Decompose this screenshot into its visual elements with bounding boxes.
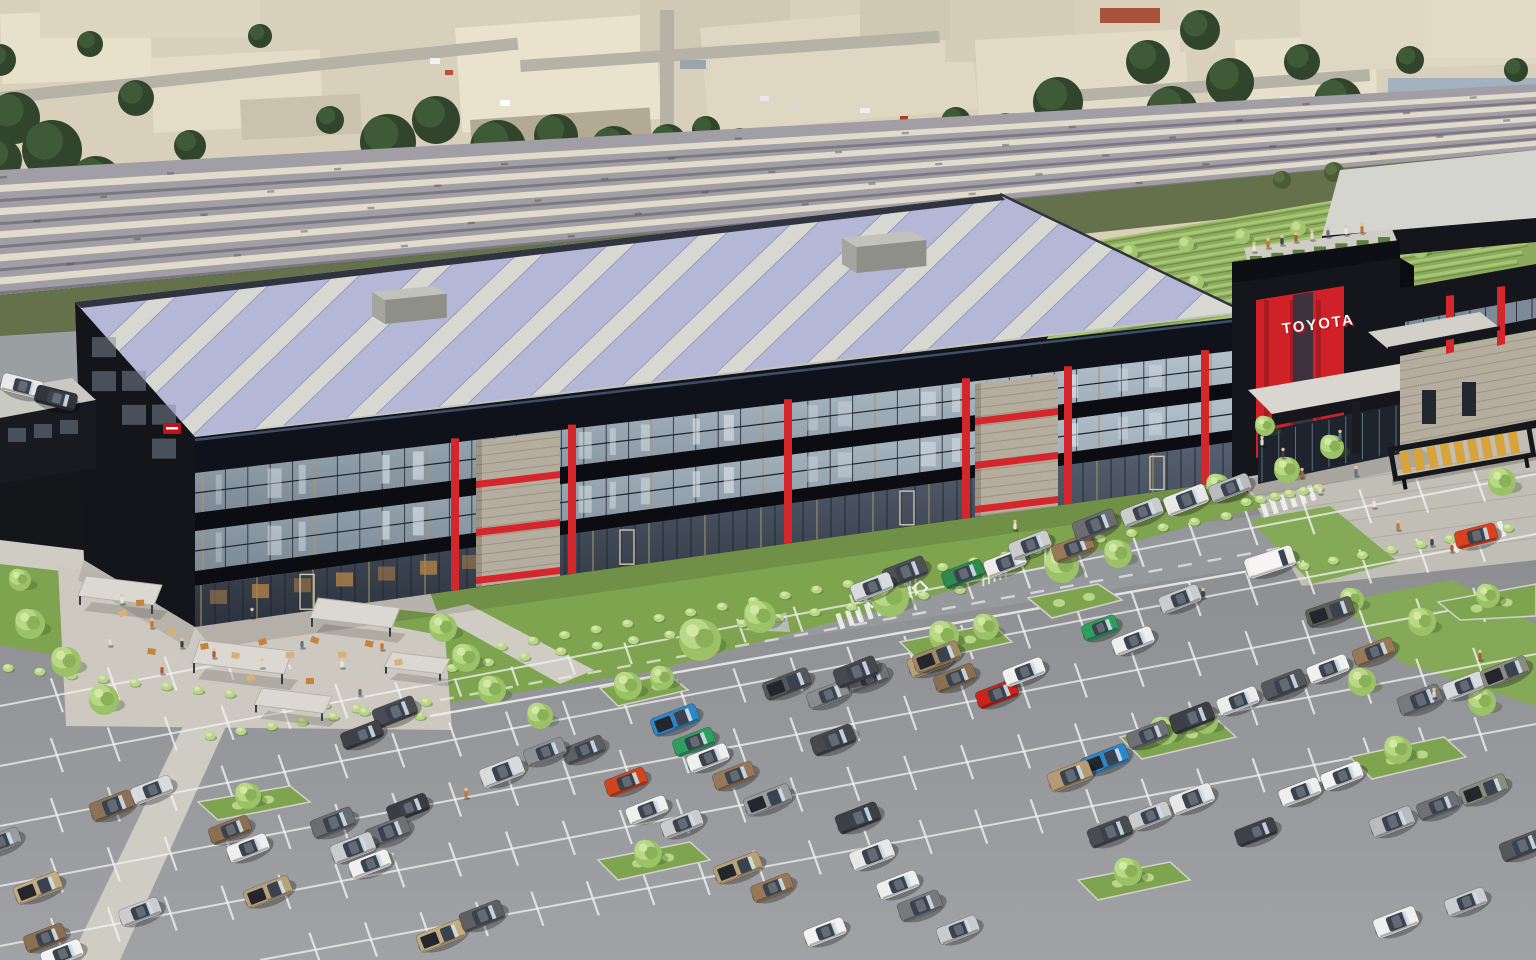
corridor-speckle	[468, 221, 475, 224]
person-head	[1450, 542, 1453, 545]
person-body	[464, 791, 467, 798]
bg-tree-highlight	[1183, 12, 1208, 37]
corridor-speckle	[67, 262, 74, 265]
interior-glimpse	[299, 522, 306, 551]
corridor-speckle	[100, 195, 107, 198]
corridor-speckle	[33, 220, 40, 223]
corridor-speckle	[301, 230, 308, 233]
person-shadow	[160, 673, 166, 676]
corridor-speckle	[1002, 144, 1009, 147]
corridor-speckle	[735, 137, 742, 140]
person-head	[464, 788, 467, 791]
person-shadow	[1432, 697, 1438, 700]
person-head	[160, 664, 163, 667]
interior-glimpse	[579, 486, 592, 513]
tree-highlight	[457, 648, 465, 656]
shrub-highlight	[1446, 535, 1452, 539]
bg-vehicle	[430, 58, 440, 64]
person-body	[212, 651, 215, 658]
corridor-speckle	[434, 184, 441, 187]
shrub-highlight	[1300, 563, 1306, 567]
person-body	[108, 639, 111, 646]
shrub-highlight	[237, 728, 243, 732]
roof-tree-highlight	[1190, 276, 1199, 285]
person-body	[1260, 439, 1263, 446]
person-head	[1326, 227, 1329, 230]
tree-highlight	[1279, 460, 1287, 468]
bg-tree-highlight	[415, 98, 445, 128]
person-head	[150, 618, 153, 621]
corridor-speckle	[1202, 163, 1209, 166]
person-body	[1338, 433, 1341, 440]
person-body	[250, 611, 253, 618]
person-head	[250, 608, 253, 611]
person-shadow	[1281, 457, 1287, 460]
corridor-speckle	[1169, 136, 1176, 139]
corridor-speckle	[1303, 103, 1310, 106]
tree-highlight	[94, 689, 103, 698]
person-body	[1430, 539, 1433, 546]
right-door	[1422, 390, 1436, 424]
corridor-speckle	[601, 178, 608, 181]
person-shadow	[380, 649, 386, 652]
bg-road	[660, 10, 674, 130]
person-head	[1478, 650, 1481, 653]
corridor-speckle	[234, 254, 241, 257]
shrub-highlight	[687, 609, 693, 613]
shrub-highlight	[666, 631, 672, 635]
interior-glimpse	[807, 405, 818, 430]
person-head	[260, 658, 263, 661]
shrub-highlight	[226, 690, 232, 694]
person-head	[212, 648, 215, 651]
right-door	[1462, 382, 1476, 416]
interior-glimpse	[838, 401, 852, 426]
bg-tree-highlight	[318, 107, 335, 124]
person-head	[1260, 436, 1263, 439]
interior-glimpse	[693, 418, 700, 444]
interior-glimpse	[952, 388, 960, 412]
person-body	[1252, 245, 1255, 252]
annex-window	[60, 420, 78, 434]
small-sign-text-bar	[166, 427, 178, 430]
red-accent-stripe	[568, 425, 576, 574]
corridor-speckle	[1035, 173, 1042, 176]
shrub-highlight	[1222, 513, 1228, 517]
person-head	[1432, 688, 1435, 691]
person-body	[1318, 487, 1321, 494]
corridor-speckle	[1136, 182, 1143, 185]
interior-glimpse	[216, 532, 222, 562]
person-body	[1432, 691, 1435, 698]
interior-glimpse	[724, 467, 734, 493]
corridor-speckle	[1403, 112, 1410, 115]
person-shadow	[1294, 241, 1300, 244]
interior-glimpse	[952, 438, 960, 462]
interior-glimpse	[610, 482, 616, 509]
person-shadow	[1430, 545, 1436, 548]
shrub-highlight	[1271, 493, 1277, 497]
bg-tree-highlight	[1398, 47, 1415, 64]
island-shrub	[1083, 593, 1095, 601]
tree-highlight	[434, 618, 442, 626]
person-body	[1310, 233, 1313, 240]
shrub-highlight	[1504, 525, 1510, 529]
person-head	[1281, 448, 1284, 451]
shrub-highlight	[718, 603, 724, 607]
corridor-speckle	[1436, 135, 1443, 138]
tree-highlight	[13, 572, 20, 579]
person-body	[1013, 523, 1016, 530]
person-head	[1310, 230, 1313, 233]
patio-furniture	[338, 651, 346, 658]
bg-tree-highlight	[120, 81, 142, 103]
bg-tree-highlight	[250, 25, 265, 40]
corridor-speckle	[701, 191, 708, 194]
shrub-highlight	[1191, 518, 1197, 522]
interior-glimpse	[413, 451, 424, 479]
person-head	[108, 636, 111, 639]
person-head	[1201, 588, 1204, 591]
person-body	[1344, 228, 1347, 235]
canopy-column	[1352, 401, 1360, 455]
person-shadow	[1354, 475, 1360, 478]
corridor-speckle	[401, 245, 408, 248]
shrub-highlight	[268, 723, 274, 727]
person-shadow	[1450, 551, 1456, 554]
interior-glimpse	[921, 442, 936, 466]
corridor-speckle	[668, 157, 675, 160]
person-shadow	[1478, 659, 1484, 662]
shrub-highlight	[521, 653, 527, 657]
person-shadow	[1318, 493, 1324, 496]
shrub-highlight	[529, 637, 535, 641]
annex-window	[34, 424, 52, 438]
corridor-speckle	[167, 172, 174, 175]
corridor-speckle	[902, 132, 909, 135]
red-accent-stripe	[962, 378, 970, 518]
island-shrub	[964, 636, 976, 644]
shrub-highlight	[353, 705, 359, 709]
person-head	[1430, 536, 1433, 539]
bg-tree-highlight	[1209, 60, 1239, 90]
corridor-speckle	[1069, 126, 1076, 129]
tree-highlight	[1109, 544, 1117, 552]
cafe-interior-glow	[336, 572, 353, 586]
bg-vehicle	[760, 96, 769, 101]
person-shadow	[300, 647, 306, 650]
interior-glimpse	[382, 455, 390, 484]
cafe-interior-glow	[378, 567, 395, 581]
person-shadow	[1310, 239, 1316, 242]
bg-tree-highlight	[1506, 59, 1521, 74]
bg-vehicle	[790, 104, 799, 109]
interior-glimpse	[413, 507, 424, 535]
person-head	[1294, 232, 1297, 235]
corridor-speckle	[1236, 119, 1243, 122]
tree-highlight	[750, 605, 760, 615]
end-face-window	[92, 371, 116, 391]
tree-highlight	[1389, 740, 1397, 748]
tree-highlight	[1259, 419, 1265, 425]
interior-glimpse	[838, 453, 852, 478]
shrub-highlight	[844, 581, 850, 585]
bg-tree-highlight	[1129, 42, 1156, 69]
person-shadow	[120, 603, 126, 606]
shrub-highlight	[206, 733, 212, 737]
interior-glimpse	[1149, 365, 1162, 388]
roof-tree-highlight	[1292, 222, 1301, 231]
person-body	[1280, 238, 1283, 245]
person-body	[1294, 235, 1297, 242]
bg-tree-highlight	[79, 32, 95, 48]
corridor-speckle	[134, 238, 141, 241]
tree-highlight	[978, 617, 986, 625]
shrub-highlight	[131, 679, 137, 683]
tree-highlight	[1413, 612, 1421, 620]
patio-furniture	[306, 678, 314, 684]
person-head	[1013, 520, 1016, 523]
person-shadow	[108, 645, 114, 648]
annex-window	[8, 428, 26, 442]
person-body	[1372, 501, 1375, 508]
tree-highlight	[1210, 477, 1217, 484]
shrub-highlight	[36, 668, 42, 672]
verge-tree-highlight	[1325, 163, 1337, 175]
warehouse-block	[40, 0, 260, 38]
person-head	[1252, 242, 1255, 245]
end-face-window	[152, 405, 176, 425]
corridor-speckle	[969, 193, 976, 196]
shrub-highlight	[629, 637, 635, 641]
tree-highlight	[240, 786, 248, 794]
scene-stage: TOYOTATOYOTA	[0, 0, 1536, 960]
corridor-speckle	[1336, 128, 1343, 131]
interior-glimpse	[1118, 417, 1128, 440]
island-shrub	[1471, 605, 1483, 613]
shrub-highlight	[939, 564, 945, 568]
tree-highlight	[934, 625, 943, 634]
person-head	[380, 640, 383, 643]
corridor-speckle	[1503, 119, 1510, 122]
interior-glimpse	[610, 428, 616, 455]
island-shrub	[1053, 599, 1065, 607]
person-body	[1266, 241, 1269, 248]
tree-highlight	[1493, 472, 1501, 480]
person-shadow	[1266, 247, 1272, 250]
shrub-highlight	[738, 620, 744, 624]
corridor-speckle	[501, 163, 508, 166]
roof-tree-highlight	[1236, 230, 1245, 239]
bg-vehicle	[445, 70, 453, 75]
corridor-speckle	[334, 168, 341, 171]
end-face-window	[152, 439, 176, 459]
shrub-highlight	[422, 699, 428, 703]
tree-highlight	[686, 624, 699, 637]
shrub-highlight	[593, 642, 599, 646]
end-face-window	[92, 337, 116, 357]
patio-furniture	[286, 652, 294, 658]
bg-vehicle	[1100, 8, 1160, 23]
person-head	[120, 594, 123, 597]
shrub-highlight	[99, 676, 105, 680]
person-body	[260, 661, 263, 668]
shrub-highlight	[1300, 487, 1306, 491]
shrub-highlight	[1159, 524, 1165, 528]
shrub-highlight	[194, 687, 200, 691]
person-head	[1396, 520, 1399, 523]
interior-glimpse	[1149, 413, 1162, 436]
cafe-interior-glow	[210, 590, 227, 604]
cafe-interior-glow	[294, 578, 311, 592]
shrub-highlight	[781, 592, 787, 596]
person-shadow	[1372, 507, 1378, 510]
person-head	[1360, 223, 1363, 226]
shrub-highlight	[557, 648, 563, 652]
shrub-highlight	[561, 632, 567, 636]
interior-glimpse	[724, 415, 734, 441]
interior-glimpse	[268, 526, 282, 555]
person-body	[150, 621, 153, 628]
person-body	[1281, 451, 1284, 458]
end-face-window	[122, 405, 146, 425]
person-body	[120, 597, 123, 604]
corridor-speckle	[835, 151, 842, 154]
person-body	[1478, 653, 1481, 660]
person-body	[1360, 226, 1363, 233]
red-accent-stripe	[784, 399, 792, 543]
corridor-speckle	[935, 163, 942, 166]
shrub-highlight	[847, 603, 853, 607]
person-body	[300, 641, 303, 648]
corridor-speckle	[568, 235, 575, 238]
shrub-highlight	[624, 620, 630, 624]
person-head	[340, 658, 343, 661]
interior-glimpse	[641, 425, 650, 452]
tree-highlight	[619, 676, 627, 684]
corridor-speckle	[1470, 96, 1477, 99]
interior-glimpse	[579, 432, 592, 459]
corridor-speckle	[0, 176, 7, 179]
corridor-speckle	[1269, 145, 1276, 148]
bg-tree-highlight	[1036, 79, 1067, 110]
person-shadow	[1280, 244, 1286, 247]
person-head	[1338, 430, 1341, 433]
corridor-speckle	[200, 213, 207, 216]
tree-highlight	[483, 680, 491, 688]
person-head	[358, 686, 361, 689]
shrub-highlight	[329, 713, 335, 717]
tree-highlight	[1353, 672, 1361, 680]
person-head	[1266, 238, 1269, 241]
person-head	[1280, 235, 1283, 238]
patio-furniture	[231, 652, 240, 659]
shrub-highlight	[448, 665, 454, 669]
patio-furniture	[147, 648, 156, 655]
end-face-window	[122, 371, 146, 391]
stone-pier	[975, 374, 1058, 517]
person-shadow	[464, 797, 470, 800]
shrub-highlight	[360, 708, 366, 712]
verge-tree-highlight	[1274, 172, 1285, 183]
person-shadow	[1326, 236, 1332, 239]
shrub-highlight	[1358, 552, 1364, 556]
bg-tree-highlight	[1286, 45, 1308, 67]
corridor-speckle	[868, 182, 875, 185]
shrub-highlight	[498, 643, 504, 647]
bg-tree-highlight	[26, 122, 63, 159]
corridor-speckle	[1102, 154, 1109, 157]
shrub-highlight	[920, 592, 926, 596]
cafe-interior-glow	[252, 584, 269, 598]
person-head	[1354, 466, 1357, 469]
person-head	[180, 638, 183, 641]
person-shadow	[1260, 445, 1266, 448]
roof-tree-highlight	[1180, 238, 1189, 247]
person-shadow	[1360, 232, 1366, 235]
person-body	[1300, 471, 1303, 478]
warehouse-block	[1425, 0, 1536, 58]
person-shadow	[1201, 597, 1207, 600]
bg-tree-highlight	[176, 131, 196, 151]
shrub-highlight	[1387, 546, 1393, 550]
shrub-highlight	[1417, 541, 1423, 545]
red-accent-stripe	[1201, 350, 1209, 485]
person-body	[380, 643, 383, 650]
corridor-speckle	[1369, 152, 1376, 155]
person-body	[160, 667, 163, 674]
person-head	[1300, 468, 1303, 471]
person-body	[1354, 469, 1357, 476]
person-head	[1344, 225, 1347, 228]
person-shadow	[250, 617, 256, 620]
person-body	[1326, 230, 1329, 237]
person-head	[300, 638, 303, 641]
bg-tree-highlight	[364, 116, 399, 151]
shrub-highlight	[1128, 530, 1134, 534]
tree-highlight	[639, 844, 647, 852]
patio-furniture	[200, 643, 209, 650]
shrub-highlight	[811, 609, 817, 613]
bg-vehicle	[680, 60, 706, 69]
shrub-highlight	[655, 615, 661, 619]
interior-glimpse	[807, 457, 818, 482]
bg-vehicle	[860, 108, 870, 113]
corridor-speckle	[635, 212, 642, 215]
person-body	[1201, 591, 1204, 598]
tree-highlight	[532, 706, 540, 714]
person-body	[1450, 545, 1453, 552]
interior-glimpse	[216, 475, 222, 505]
shrub-highlight	[1256, 496, 1262, 500]
shrub-highlight	[813, 586, 819, 590]
person-shadow	[1013, 529, 1019, 532]
person-shadow	[1344, 234, 1350, 237]
bg-vehicle	[500, 100, 510, 106]
red-accent-stripe	[451, 438, 459, 590]
interior-glimpse	[268, 468, 282, 497]
tree-highlight	[56, 651, 65, 660]
person-shadow	[358, 695, 364, 698]
cafe-interior-glow	[420, 561, 437, 575]
person-shadow	[1300, 477, 1306, 480]
person-body	[180, 641, 183, 648]
interior-glimpse	[921, 392, 936, 416]
corridor-speckle	[267, 190, 274, 193]
shrub-highlight	[1285, 490, 1291, 494]
interior-glimpse	[299, 465, 306, 494]
shrub-highlight	[1242, 499, 1248, 503]
